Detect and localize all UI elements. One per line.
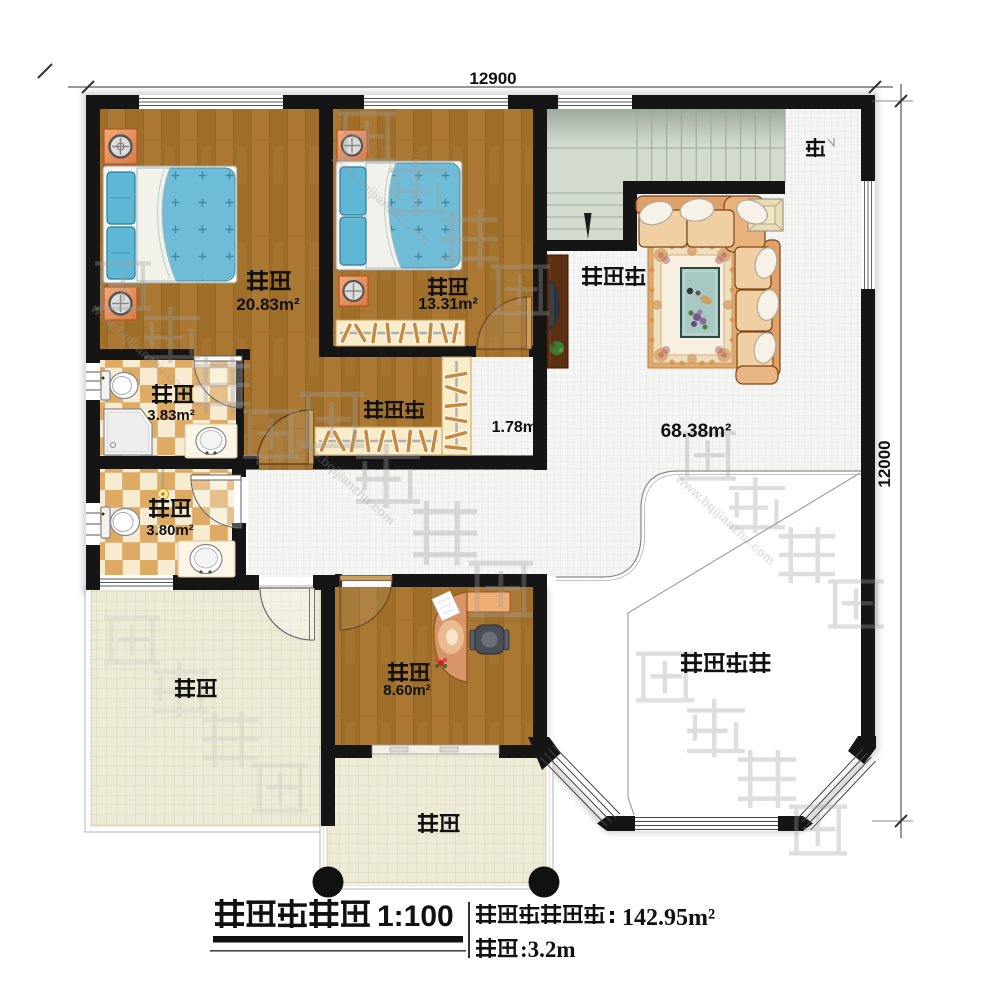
svg-text:13.31m²: 13.31m²	[418, 296, 478, 313]
svg-text:68.38m²: 68.38m²	[661, 421, 732, 442]
svg-text::3.2m: :3.2m	[520, 937, 576, 962]
svg-text:142.95m²: 142.95m²	[622, 905, 715, 931]
svg-text:3.80m²: 3.80m²	[146, 522, 194, 539]
svg-text:3.83m²: 3.83m²	[147, 407, 195, 424]
svg-text:12900: 12900	[469, 69, 516, 88]
svg-text:1.78m²: 1.78m²	[492, 419, 543, 436]
svg-text:12000: 12000	[875, 440, 894, 487]
svg-text:20.83m²: 20.83m²	[236, 295, 300, 314]
svg-text:1:100: 1:100	[377, 900, 454, 933]
svg-text:8.60m²: 8.60m²	[383, 682, 431, 699]
